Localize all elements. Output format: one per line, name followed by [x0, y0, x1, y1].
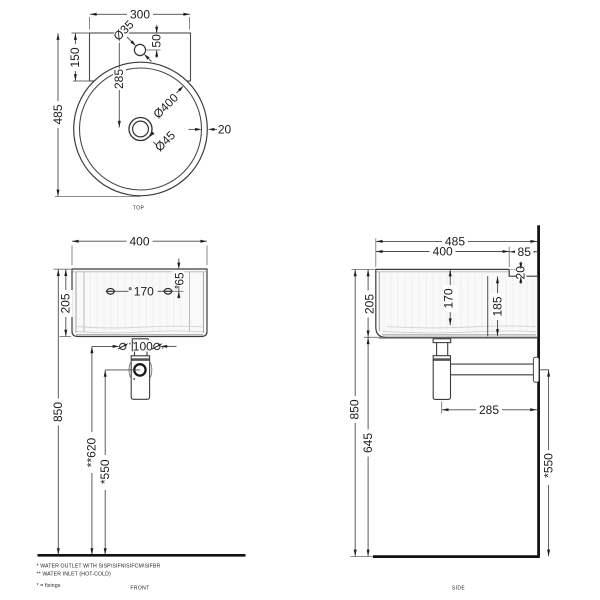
svg-text:645: 645: [361, 433, 375, 453]
svg-text:300: 300: [130, 8, 150, 22]
svg-text:** WATER INLET (HOT-COLD): ** WATER INLET (HOT-COLD): [37, 571, 112, 577]
svg-text:FRONT: FRONT: [130, 585, 149, 591]
svg-text:485: 485: [51, 104, 65, 124]
svg-text:*: *: [162, 347, 164, 353]
svg-text:*550: *550: [541, 453, 555, 478]
svg-text:TOP: TOP: [133, 205, 145, 211]
svg-text:*550: *550: [98, 459, 112, 484]
svg-text:150: 150: [68, 47, 82, 67]
svg-text:100: 100: [133, 339, 153, 353]
svg-text:285: 285: [479, 403, 499, 417]
svg-text:400: 400: [433, 245, 453, 259]
svg-text:* WATER OUTLET WITH SISP\SIFN: * WATER OUTLET WITH SISP\SIFN\SIFCM\SIFB…: [37, 563, 161, 569]
svg-text:65: 65: [172, 272, 186, 286]
svg-text:170: 170: [134, 285, 154, 299]
svg-text:205: 205: [362, 294, 376, 314]
svg-text:* = fixings: * = fixings: [37, 583, 61, 589]
svg-text:SIDE: SIDE: [452, 585, 466, 591]
svg-text:*: *: [129, 343, 131, 349]
svg-text:20: 20: [218, 123, 232, 137]
svg-text:400: 400: [129, 234, 149, 248]
svg-text:285: 285: [112, 69, 126, 89]
svg-text:170: 170: [442, 288, 456, 308]
svg-text:50: 50: [149, 34, 163, 48]
svg-text:205: 205: [59, 293, 73, 313]
svg-text:850: 850: [348, 399, 362, 419]
svg-text:20: 20: [514, 266, 528, 280]
svg-text:**620: **620: [85, 438, 99, 468]
svg-text:85: 85: [518, 245, 532, 259]
svg-text:850: 850: [51, 402, 65, 422]
svg-text:185: 185: [490, 296, 504, 316]
